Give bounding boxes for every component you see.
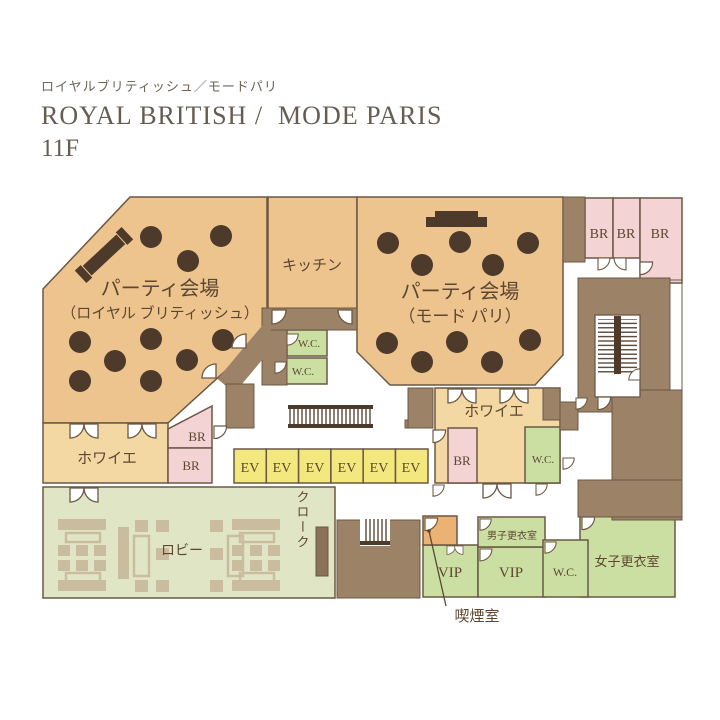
smoking-label: 喫煙室 xyxy=(454,608,499,625)
wc-1-label: W.C. xyxy=(298,338,320,350)
wc-2-label: W.C. xyxy=(292,366,314,378)
smoking-leader-dot xyxy=(427,529,431,533)
ev-1-label: EV xyxy=(241,461,260,476)
foyer-left-label: ホワイエ xyxy=(77,451,137,467)
ev-5-label: EV xyxy=(370,461,389,476)
wc-foyer-label: W.C. xyxy=(532,454,554,466)
vip-1-label: VIP xyxy=(438,565,462,581)
womens-changing-label: 女子更衣室 xyxy=(594,554,659,569)
wc-3-label: W.C. xyxy=(553,565,577,579)
br-1-label: BR xyxy=(188,429,206,444)
party-royal-label: パーティ会場 xyxy=(101,277,220,300)
cloak-label: クローク xyxy=(295,490,310,550)
br-foyer-label: BR xyxy=(453,453,471,468)
foyer-right-label: ホワイエ xyxy=(464,404,524,420)
mens-changing-label: 男子更衣室 xyxy=(487,529,537,542)
cloak-counter xyxy=(316,527,328,576)
lobby-label: ロビー xyxy=(161,543,203,559)
ev-3-label: EV xyxy=(306,461,325,476)
floor-guide-page: { "header": { "subtitle_jp": "ロイヤルブリティッシ… xyxy=(0,0,720,720)
escalator-lower xyxy=(360,518,390,546)
br-2-label: BR xyxy=(182,458,200,473)
floor-plan: パーティ会場 （ロイヤル ブリティッシュ） パーティ会場 （モード パリ） キッ… xyxy=(0,0,720,720)
party-royal-sublabel: （ロイヤル ブリティッシュ） xyxy=(61,304,258,322)
ev-6-label: EV xyxy=(402,461,421,476)
party-mode-label: パーティ会場 xyxy=(401,280,520,303)
ev-2-label: EV xyxy=(273,461,292,476)
staircase xyxy=(595,315,640,397)
party-mode-sublabel: （モード パリ） xyxy=(398,307,521,326)
ev-4-label: EV xyxy=(338,461,357,476)
br-b-label: BR xyxy=(617,227,636,242)
vip-2-label: VIP xyxy=(499,565,523,581)
room-kitchen xyxy=(268,197,357,310)
elevator-bank xyxy=(234,449,428,483)
escalator-main xyxy=(288,405,373,428)
br-c-label: BR xyxy=(651,227,670,242)
kitchen-label: キッチン xyxy=(282,258,342,274)
br-a-label: BR xyxy=(590,227,609,242)
stage-mode xyxy=(426,211,487,227)
